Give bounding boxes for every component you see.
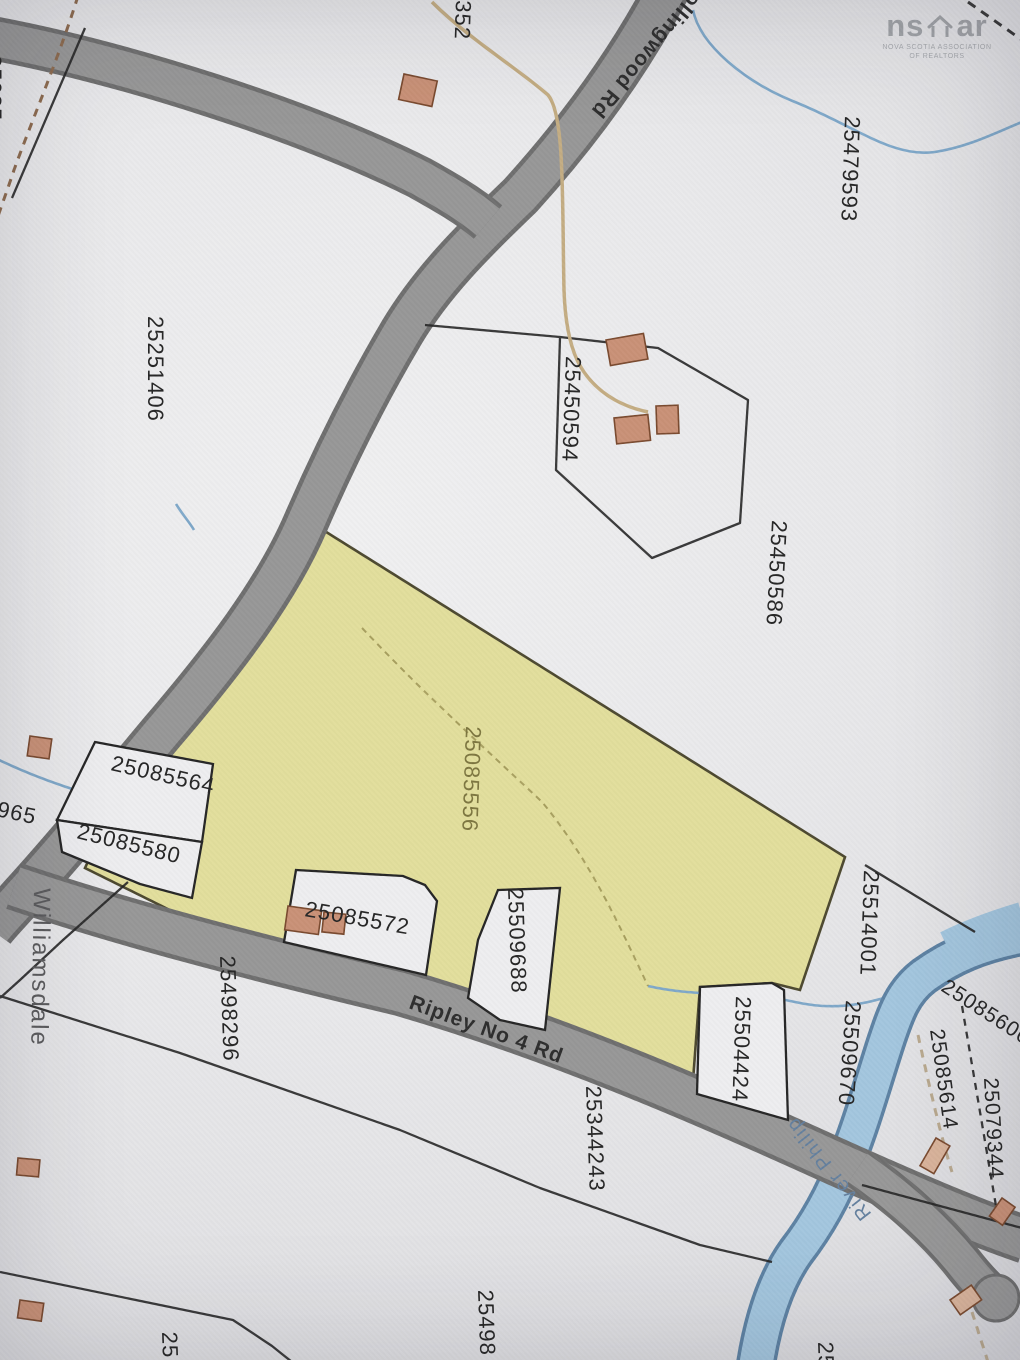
parcel-label-25450594: 25450594 [557, 356, 586, 463]
parcel-label-25504424: 25504424 [727, 996, 756, 1103]
building [27, 736, 52, 759]
parcel-label-25085614: 25085614 [925, 1027, 962, 1131]
parcel-map-canvas: 25251406 25479593 25450594 25450586 2508… [0, 0, 1020, 1360]
house-icon [925, 13, 955, 41]
building [606, 333, 648, 365]
building [17, 1300, 43, 1321]
partial-label-352: 352 [450, 0, 476, 40]
building [614, 414, 651, 443]
road-branch-topleft [0, 38, 488, 222]
nsar-caption-line1: NOVA SCOTIA ASSOCIATION [882, 43, 991, 52]
building [920, 1138, 950, 1174]
partial-label-25-bottom-left: 25 [157, 1331, 183, 1358]
building [399, 74, 438, 107]
parcel-label-25509688: 25509688 [503, 887, 532, 994]
parcel-label-25079344: 25079344 [979, 1077, 1007, 1180]
parcel-label-25479593: 25479593 [836, 116, 865, 223]
community-label-williamsdale: Williamsdale [25, 888, 55, 1047]
partial-label-965: 965 [0, 796, 39, 829]
nsar-logo-text-ns: ns [886, 10, 924, 41]
partial-label-25498-bottom: 25498 [473, 1289, 500, 1356]
parcel-label-25450586: 25450586 [761, 520, 792, 627]
building [17, 1158, 40, 1177]
parcel-label-25514001: 25514001 [855, 870, 884, 977]
nsar-logo: ns ar NOVA SCOTIA ASSOCIATION OF REALTOR… [872, 10, 1002, 62]
nsar-logo-text-ar: ar [956, 10, 987, 41]
parcel-label-25498296: 25498296 [215, 955, 244, 1062]
parcel-label-25344243: 25344243 [581, 1085, 610, 1192]
building [656, 405, 679, 434]
partial-label-25085-left-edge: 25085 [0, 55, 6, 121]
partial-label-25-bottom-right: 25 [813, 1341, 839, 1360]
nsar-caption-line2: OF REALTORS [882, 52, 991, 61]
parcel-label-25085556: 25085556 [457, 726, 486, 833]
scanned-property-map: 25251406 25479593 25450594 25450586 2508… [0, 0, 1020, 1360]
parcel-label-25251406: 25251406 [143, 316, 168, 422]
